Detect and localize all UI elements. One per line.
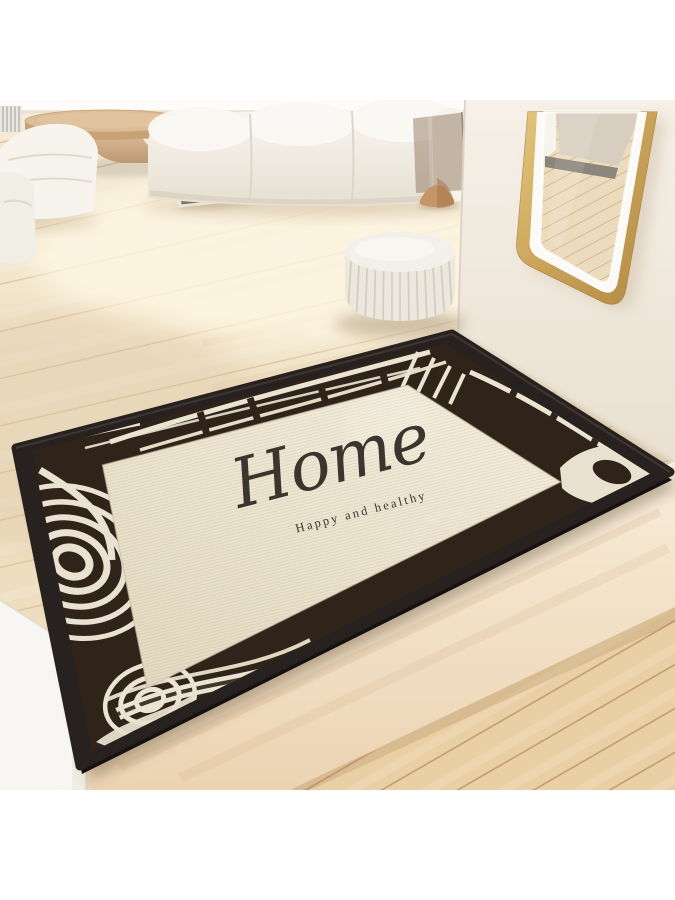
radiator: [0, 106, 22, 132]
bottom-white-band: [0, 790, 675, 900]
scene-canvas: Home Happy and healthy: [0, 0, 675, 900]
pouf-ottoman: [334, 232, 466, 337]
living-room-photo: Home Happy and healthy: [0, 0, 675, 900]
top-white-band: [0, 0, 675, 100]
